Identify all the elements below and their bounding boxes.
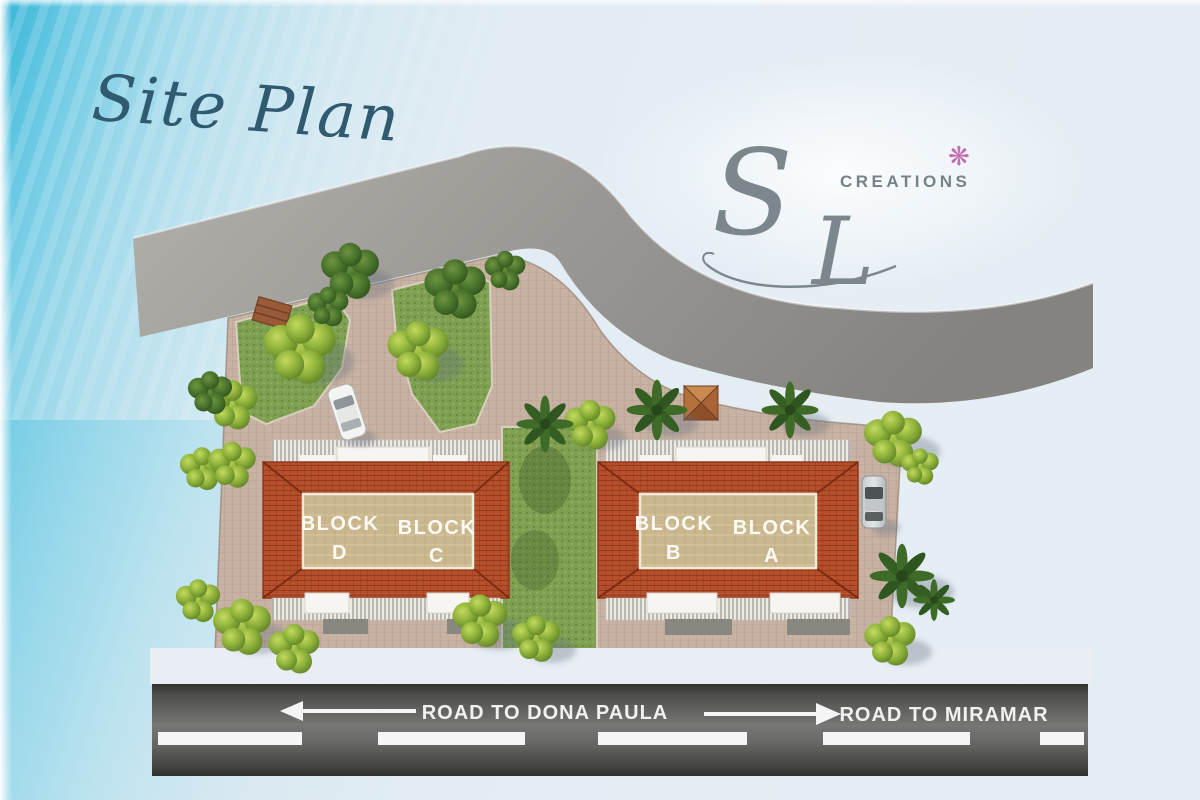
block-d-letter: D [332,542,348,564]
entry-steps [787,619,850,635]
palm-tree-icon [913,579,955,621]
road-label-miramar: ROAD TO MIRAMAR [839,704,1048,726]
palm-tree-icon [762,382,819,439]
lane-dashes [158,732,1084,745]
block-a-letter: A [764,545,780,567]
building-right: BLOCK B BLOCK A [598,440,858,635]
flower-icon: ❋ [948,142,970,172]
lawn-shade [519,446,571,514]
tree-icon [176,579,220,622]
logo-letter-s: S [712,134,793,252]
balcony-slab [647,593,717,613]
balcony-slab [305,593,349,613]
block-a-label: BLOCK [733,517,812,539]
block-b-label: BLOCK [635,513,714,535]
road-label-dona-paula: ROAD TO DONA PAULA [422,702,669,724]
car-silver [862,476,886,528]
entry-steps [665,619,732,635]
block-b-letter: B [666,542,682,564]
bottom-road: ROAD TO DONA PAULA ROAD TO MIRAMAR [152,684,1088,776]
balcony-slab [770,593,840,613]
block-d-label: BLOCK [301,513,380,535]
block-c-letter: C [429,545,445,567]
site-plan-page: ROAD TO DONA PAULA ROAD TO MIRAMAR BLOCK… [0,0,1200,800]
palm-tree-icon [517,396,574,453]
block-c-label: BLOCK [398,517,477,539]
balcony-slab [676,447,766,463]
palm-tree-icon [627,380,688,441]
lawn-shade [511,530,559,590]
developer-logo: S L CREATIONS ❋ [690,128,1010,328]
logo-name: CREATIONS [840,172,970,192]
balcony-slab [337,447,429,463]
logo-letter-l: L [812,206,874,300]
entry-steps [323,619,368,634]
